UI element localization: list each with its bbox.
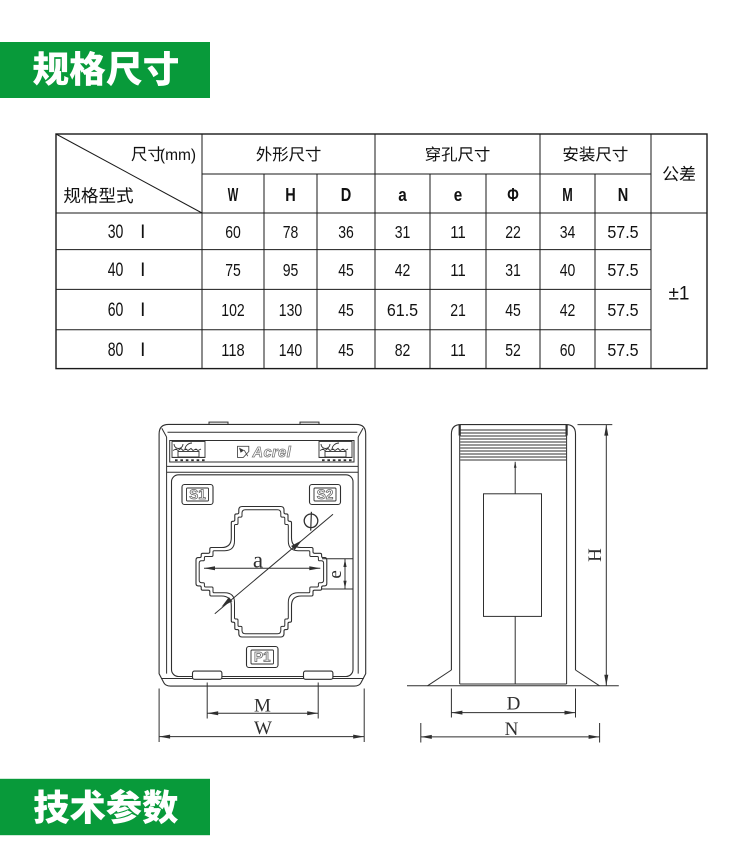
svg-text:31: 31 (505, 260, 521, 280)
svg-text:±1: ±1 (669, 283, 690, 304)
svg-text:60: 60 (225, 222, 241, 242)
svg-text:P1: P1 (254, 650, 271, 665)
svg-text:61.5: 61.5 (387, 300, 418, 320)
svg-text:11: 11 (450, 260, 466, 280)
svg-text:S2: S2 (317, 487, 334, 502)
svg-text:11: 11 (450, 340, 466, 360)
svg-text:N: N (618, 185, 629, 205)
svg-text:60: 60 (560, 340, 576, 360)
svg-text:45: 45 (338, 260, 354, 280)
svg-text:I: I (140, 300, 145, 321)
svg-text:34: 34 (560, 222, 576, 242)
svg-text:102: 102 (221, 300, 244, 320)
svg-text:W: W (254, 718, 272, 739)
svg-text:22: 22 (505, 222, 521, 242)
svg-text:40: 40 (108, 260, 124, 281)
svg-text:D: D (507, 694, 521, 715)
svg-text:52: 52 (505, 340, 521, 360)
svg-text:H: H (285, 185, 296, 205)
svg-text:57.5: 57.5 (607, 340, 638, 360)
svg-text:a: a (253, 547, 263, 572)
svg-text:11: 11 (450, 222, 466, 242)
svg-text:42: 42 (560, 300, 576, 320)
svg-text:57.5: 57.5 (607, 222, 638, 242)
svg-text:M: M (254, 695, 271, 716)
svg-text:a: a (398, 185, 407, 205)
svg-text:S1: S1 (189, 487, 206, 502)
svg-text:31: 31 (395, 222, 411, 242)
svg-text:140: 140 (279, 340, 302, 360)
svg-text:60: 60 (108, 300, 124, 321)
svg-text:75: 75 (225, 260, 241, 280)
svg-text:45: 45 (338, 300, 354, 320)
svg-text:45: 45 (338, 340, 354, 360)
svg-text:I: I (140, 260, 145, 281)
svg-text:30: 30 (108, 222, 124, 243)
svg-text:57.5: 57.5 (607, 300, 638, 320)
svg-text:40: 40 (560, 260, 576, 280)
svg-text:I: I (140, 222, 145, 243)
svg-text:W: W (228, 185, 239, 205)
svg-text:Φ: Φ (507, 185, 519, 205)
svg-text:45: 45 (505, 300, 521, 320)
svg-text:36: 36 (338, 222, 354, 242)
svg-text:e: e (454, 185, 463, 205)
svg-text:Acrel: Acrel (252, 445, 292, 461)
svg-text:N: N (505, 719, 519, 740)
svg-text:21: 21 (450, 300, 466, 320)
svg-text:78: 78 (283, 222, 299, 242)
svg-text:118: 118 (221, 340, 244, 360)
svg-text:D: D (341, 185, 352, 205)
svg-text:(mm): (mm) (160, 147, 196, 164)
svg-text:57.5: 57.5 (607, 260, 638, 280)
svg-text:I: I (140, 340, 145, 361)
svg-text:M: M (562, 185, 573, 205)
svg-text:130: 130 (279, 300, 302, 320)
svg-text:95: 95 (283, 260, 299, 280)
svg-text:42: 42 (395, 260, 411, 280)
svg-text:82: 82 (395, 340, 411, 360)
svg-text:H: H (585, 548, 606, 562)
svg-text:e: e (325, 570, 346, 578)
svg-text:80: 80 (108, 340, 124, 361)
